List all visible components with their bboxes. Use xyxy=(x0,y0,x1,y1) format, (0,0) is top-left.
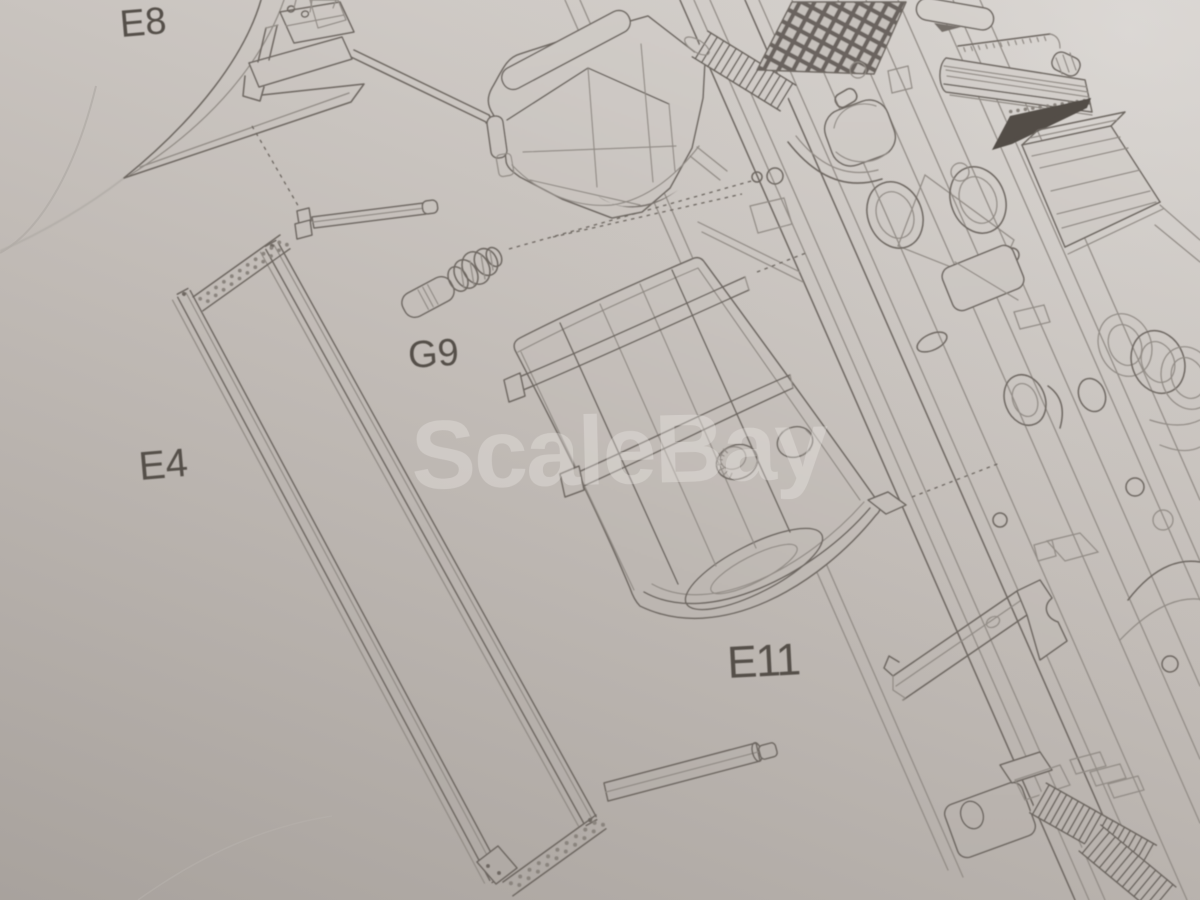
svg-text:E8: E8 xyxy=(118,0,168,46)
svg-text:ScaleBay: ScaleBay xyxy=(410,390,830,510)
svg-text:G9: G9 xyxy=(407,332,461,377)
svg-text:E4: E4 xyxy=(137,441,190,489)
svg-text:E11: E11 xyxy=(726,633,801,688)
